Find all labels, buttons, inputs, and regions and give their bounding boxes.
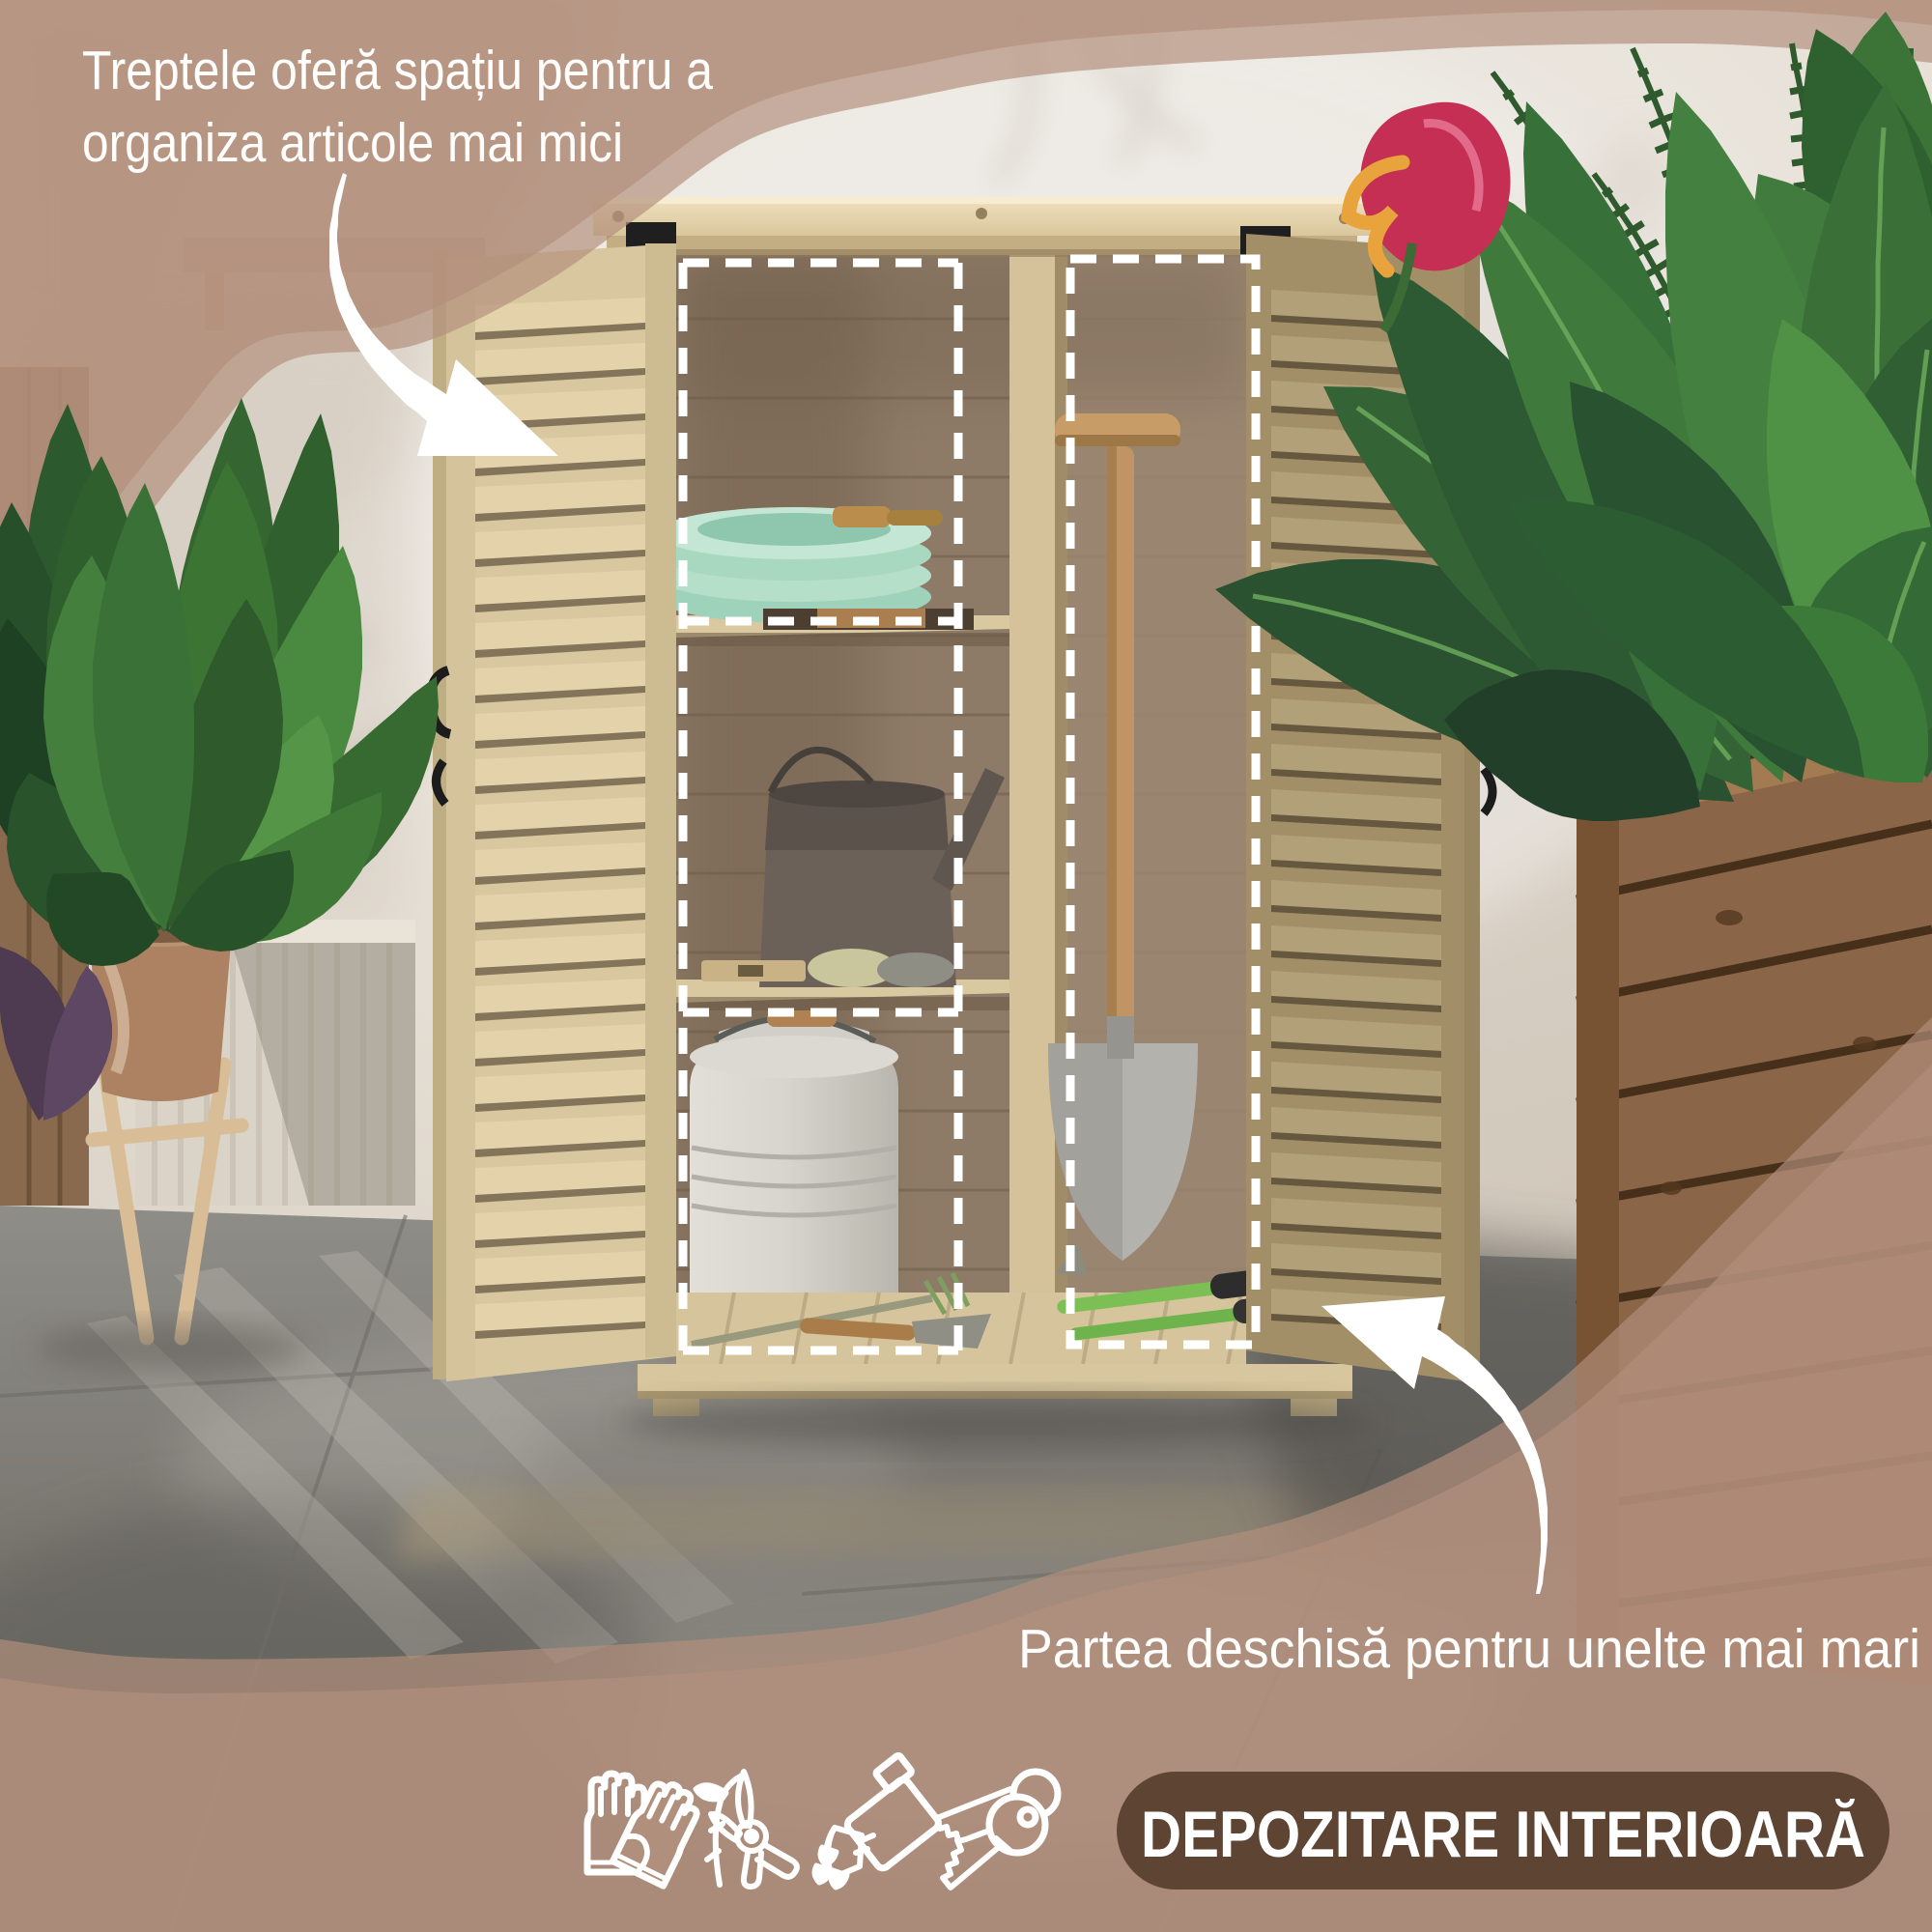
svg-text:Partea deschisă pentru unelte: Partea deschisă pentru unelte mai mari	[1018, 1618, 1920, 1680]
svg-text:DEPOZITARE INTERIOARĂ: DEPOZITARE INTERIOARĂ	[1141, 1798, 1865, 1871]
svg-text:Treptele oferă spațiu pentru a: Treptele oferă spațiu pentru a	[82, 40, 713, 101]
svg-text:organiza articole mai mici: organiza articole mai mici	[82, 112, 623, 174]
